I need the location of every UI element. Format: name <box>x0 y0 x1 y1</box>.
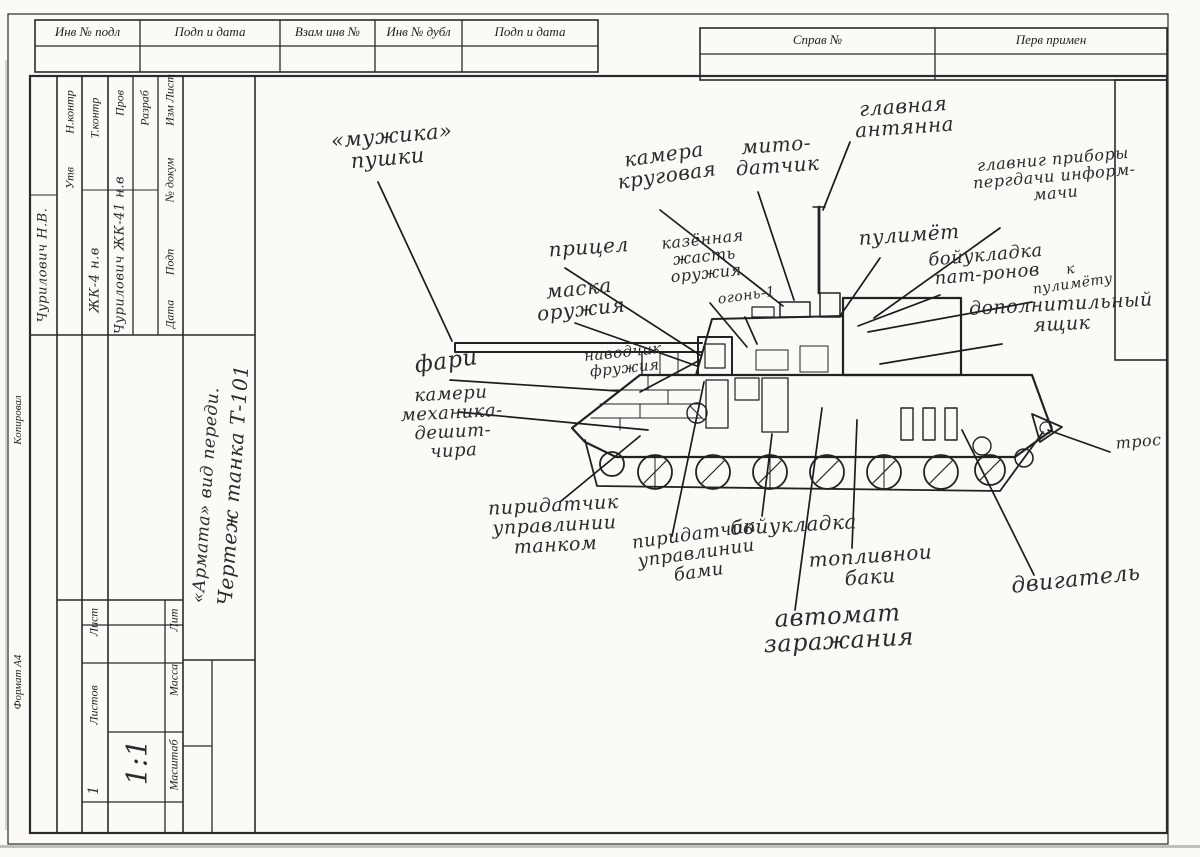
cell-scale-value: 1:1 <box>121 739 154 786</box>
col-podp: Подп <box>163 249 178 276</box>
cell-massa: Масса <box>167 664 182 696</box>
entry-author: Чурилович ЖК-41 н.в <box>113 176 128 334</box>
part-label-autoloader: автоматзаражания <box>752 599 924 658</box>
cell-lit: Лит <box>167 609 182 632</box>
role-razrab: Разраб <box>138 90 153 126</box>
entry-signature: Чурилович Н.В. <box>36 208 51 323</box>
cell-listov-value: 1 <box>86 785 102 794</box>
header-podp-data-1: Подп и дата <box>140 24 280 40</box>
cell-list: Лист <box>87 608 102 636</box>
drawing-sheet: Инв № подл Подп и дата Взам инв № Инв № … <box>0 0 1200 857</box>
part-label-main-antenna: главнаяантянна <box>845 92 963 142</box>
role-prov: Пров <box>113 90 128 116</box>
part-label-breech: казённаяжастьоружия <box>652 227 757 288</box>
col-izm-list: Изм Лист <box>163 74 178 126</box>
frame-lines <box>8 14 1168 844</box>
header-vzam-inv: Взам инв № <box>280 24 375 40</box>
cell-masshtab: Масштаб <box>167 739 182 790</box>
header-perv-primen: Перв примен <box>935 32 1167 48</box>
col-no-dokum: № докум <box>163 158 178 203</box>
header-inv-podl: Инв № подл <box>35 24 140 40</box>
part-label-fuel-tanks: топливноибаки <box>808 542 931 592</box>
scan-edge-bottom <box>0 845 1200 848</box>
part-label-driver-cameras: камеримеханика-дешит-чира <box>363 381 542 466</box>
role-n-kontr: Н.контр <box>63 90 78 133</box>
role-t-kontr: Т.контр <box>88 98 103 139</box>
part-label-meteo-sensor: мито-датчик <box>728 131 826 180</box>
role-utv: Утв <box>63 167 78 189</box>
header-sprav-no: Справ № <box>700 32 935 48</box>
margin-kopiroval: Копировал <box>12 395 24 444</box>
part-label-gun-mask: маскаоружия <box>533 274 627 325</box>
header-podp-data-2: Подп и дата <box>462 24 598 40</box>
col-data: Дата <box>163 300 178 328</box>
margin-format: Формат А4 <box>12 655 24 710</box>
scan-edge-left <box>5 60 7 830</box>
header-inv-dubl: Инв № дубл <box>375 24 462 40</box>
part-label-tank-control-tx: пиридатчикуправлиниитанком <box>483 493 626 560</box>
drawing-geometry <box>0 0 1200 857</box>
entry-group: ЖК-4 н.в <box>88 247 103 313</box>
cell-listov: Листов <box>87 685 102 724</box>
